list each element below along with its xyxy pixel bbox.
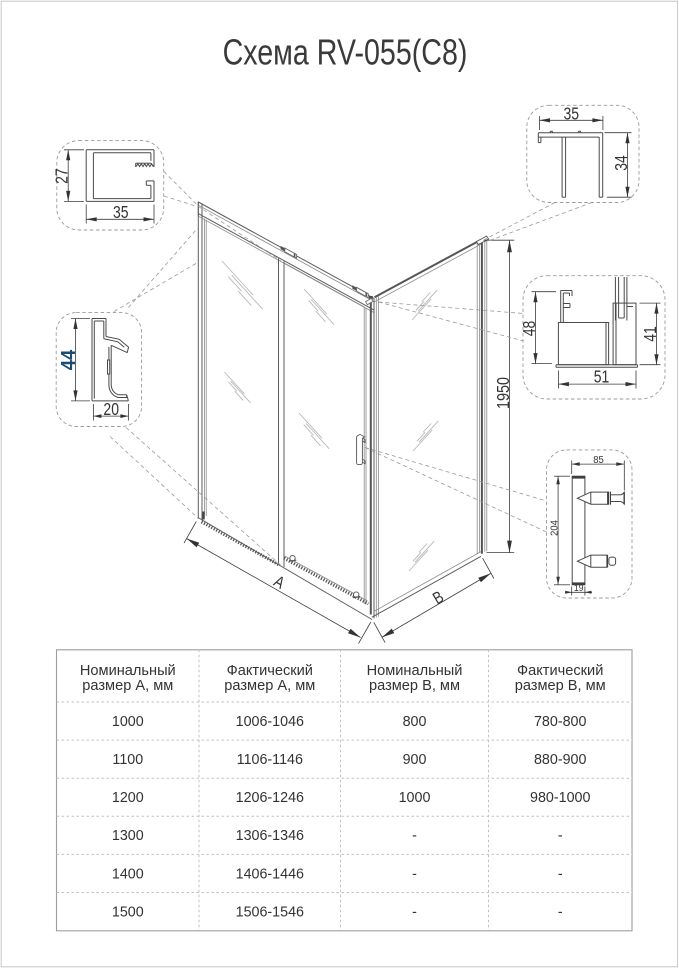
svg-text:1206-1246: 1206-1246 bbox=[236, 790, 304, 806]
svg-text:Схема RV-055(C8): Схема RV-055(C8) bbox=[223, 31, 468, 72]
svg-text:1200: 1200 bbox=[112, 790, 144, 806]
svg-text:размер А, мм: размер А, мм bbox=[82, 678, 173, 694]
svg-text:-: - bbox=[558, 866, 563, 882]
svg-text:204: 204 bbox=[549, 520, 561, 536]
svg-text:1306-1346: 1306-1346 bbox=[236, 828, 304, 844]
svg-text:Фактический: Фактический bbox=[227, 663, 313, 679]
svg-text:35: 35 bbox=[113, 204, 129, 223]
svg-text:A: A bbox=[270, 572, 288, 593]
svg-text:-: - bbox=[558, 904, 563, 920]
svg-text:Номинальный: Номинальный bbox=[80, 663, 176, 679]
svg-text:Номинальный: Номинальный bbox=[367, 663, 463, 679]
svg-text:1500: 1500 bbox=[112, 904, 144, 920]
svg-text:85: 85 bbox=[593, 455, 604, 467]
svg-text:-: - bbox=[412, 866, 417, 882]
svg-text:900: 900 bbox=[403, 752, 427, 768]
svg-text:1000: 1000 bbox=[112, 714, 144, 730]
svg-text:35: 35 bbox=[564, 105, 580, 124]
svg-text:размер А, мм: размер А, мм bbox=[224, 678, 315, 694]
svg-text:880-900: 880-900 bbox=[534, 752, 587, 768]
svg-text:48: 48 bbox=[521, 321, 540, 337]
svg-text:51: 51 bbox=[594, 368, 610, 387]
svg-text:44: 44 bbox=[58, 349, 80, 370]
svg-text:-: - bbox=[558, 828, 563, 844]
svg-text:1950: 1950 bbox=[493, 377, 513, 409]
svg-text:1006-1046: 1006-1046 bbox=[236, 714, 304, 730]
svg-text:Фактический: Фактический bbox=[517, 663, 603, 679]
svg-text:1300: 1300 bbox=[112, 828, 144, 844]
svg-text:800: 800 bbox=[403, 714, 427, 730]
svg-text:27: 27 bbox=[53, 168, 72, 184]
svg-text:20: 20 bbox=[103, 401, 119, 420]
svg-text:1400: 1400 bbox=[112, 866, 144, 882]
svg-text:1406-1446: 1406-1446 bbox=[236, 866, 304, 882]
svg-text:1000: 1000 bbox=[399, 790, 431, 806]
svg-text:34: 34 bbox=[613, 155, 632, 171]
svg-text:B: B bbox=[430, 588, 447, 609]
svg-text:19: 19 bbox=[574, 583, 583, 594]
svg-text:размер В, мм: размер В, мм bbox=[515, 678, 606, 694]
svg-text:1506-1546: 1506-1546 bbox=[236, 904, 304, 920]
svg-text:-: - bbox=[412, 828, 417, 844]
svg-text:980-1000: 980-1000 bbox=[530, 790, 590, 806]
svg-text:780-800: 780-800 bbox=[534, 714, 587, 730]
svg-text:-: - bbox=[412, 904, 417, 920]
svg-text:1106-1146: 1106-1146 bbox=[237, 752, 303, 768]
svg-text:41: 41 bbox=[642, 326, 661, 342]
svg-text:1100: 1100 bbox=[112, 752, 143, 768]
svg-text:размер В, мм: размер В, мм bbox=[369, 678, 460, 694]
